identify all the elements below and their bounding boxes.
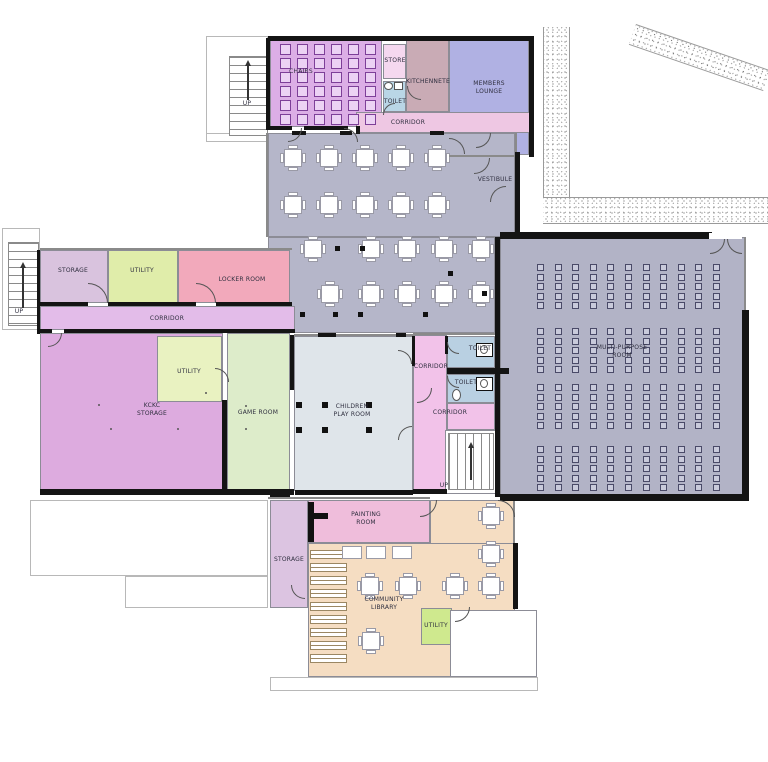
seat (607, 328, 614, 335)
table-top (356, 196, 374, 214)
sink-icon (394, 82, 403, 90)
chair (302, 200, 306, 210)
seat (625, 446, 632, 453)
seat (660, 264, 667, 271)
seat (555, 465, 562, 472)
seat (590, 446, 597, 453)
chair (366, 650, 376, 654)
wall-thin (513, 500, 515, 543)
seat (590, 475, 597, 482)
seat (537, 384, 544, 391)
chair (280, 44, 291, 55)
chair (331, 44, 342, 55)
seat (695, 394, 702, 401)
seat (643, 264, 650, 271)
seat (555, 422, 562, 429)
chair (365, 86, 376, 97)
seat (695, 484, 702, 491)
seat (555, 293, 562, 300)
seat (713, 394, 720, 401)
label-painting-room: PAINTING ROOM (351, 511, 381, 527)
seat (678, 394, 685, 401)
label-up-top: UP (243, 100, 251, 108)
seat (607, 465, 614, 472)
seat (713, 384, 720, 391)
column (322, 427, 328, 433)
chair (348, 72, 359, 83)
table (478, 541, 504, 567)
chair (374, 153, 378, 163)
up-arrow-icon (245, 60, 251, 66)
bookshelf (310, 589, 347, 598)
wall-segment (266, 38, 270, 130)
table-top (356, 149, 374, 167)
wall-segment (268, 36, 532, 41)
seat (643, 413, 650, 420)
seat (555, 394, 562, 401)
label-storage-bottom: STORAGE (274, 556, 304, 564)
table-top (362, 632, 380, 650)
seat (590, 293, 597, 300)
seat (660, 384, 667, 391)
seat (695, 293, 702, 300)
table-top (428, 149, 446, 167)
seat (537, 302, 544, 309)
seat (607, 403, 614, 410)
chair (365, 114, 376, 125)
seat (695, 422, 702, 429)
table (358, 628, 384, 654)
chair (314, 114, 325, 125)
chair (322, 244, 326, 254)
chair (464, 581, 468, 591)
wall-thin (268, 497, 430, 499)
table-top (398, 240, 416, 258)
seat (572, 465, 579, 472)
up-arrow-icon (247, 65, 249, 100)
seat (572, 293, 579, 300)
bookshelf (310, 576, 347, 585)
wall-thin (413, 333, 495, 335)
marker-dot (245, 428, 247, 430)
label-chairs-room: CHAIRS (289, 68, 313, 76)
seat (555, 264, 562, 271)
seat (713, 338, 720, 345)
chair (402, 258, 412, 262)
table (395, 573, 421, 599)
label-locker-room: LOCKER ROOM (219, 276, 266, 284)
chair (432, 214, 442, 218)
bookshelf (310, 654, 347, 663)
seat (625, 413, 632, 420)
wall-segment (222, 400, 227, 495)
seat (660, 475, 667, 482)
seat (678, 422, 685, 429)
seat (643, 328, 650, 335)
label-corridor-top: CORRIDOR (391, 119, 425, 127)
seat (713, 328, 720, 335)
stipple-area (543, 197, 768, 224)
seat (660, 293, 667, 300)
label-utility-mid: UTILITY (130, 267, 154, 275)
seat (695, 338, 702, 345)
seat (625, 403, 632, 410)
up-arrow-icon (20, 262, 26, 268)
seat (537, 394, 544, 401)
table (316, 145, 342, 171)
seat (572, 302, 579, 309)
chair (325, 303, 335, 307)
seat (555, 357, 562, 364)
chair (331, 114, 342, 125)
wall-segment (430, 131, 444, 135)
table-top (482, 545, 500, 563)
chair (348, 86, 359, 97)
chair (280, 100, 291, 111)
column (335, 246, 340, 251)
table (478, 573, 504, 599)
label-community-library: COMMUNITY LIBRARY (364, 596, 403, 612)
seat (537, 293, 544, 300)
seat (695, 465, 702, 472)
chair (486, 525, 496, 529)
seat (660, 413, 667, 420)
table-top (472, 285, 490, 303)
seat (713, 274, 720, 281)
chair (338, 153, 342, 163)
seat (643, 274, 650, 281)
seat (643, 302, 650, 309)
seat (643, 394, 650, 401)
table (316, 192, 342, 218)
seat (590, 413, 597, 420)
seat (643, 403, 650, 410)
chair (365, 44, 376, 55)
easel-icon (308, 513, 328, 519)
seat (678, 366, 685, 373)
seat (607, 475, 614, 482)
table-top (472, 240, 490, 258)
wall-segment (40, 489, 294, 495)
wall-thin (744, 237, 746, 313)
wall-segment (318, 333, 336, 337)
seat (678, 475, 685, 482)
chair (348, 114, 359, 125)
table (424, 145, 450, 171)
marker-dot (205, 392, 207, 394)
chair (403, 595, 413, 599)
seat (625, 264, 632, 271)
bookshelf (310, 615, 347, 624)
table (342, 546, 362, 559)
seat (660, 283, 667, 290)
seat (660, 366, 667, 373)
wall-thin (449, 155, 517, 157)
seat (555, 384, 562, 391)
seat (660, 484, 667, 491)
table-top (435, 285, 453, 303)
seat (678, 456, 685, 463)
room-utility-mid (108, 250, 178, 303)
label-up-bottom: UP (440, 482, 448, 490)
seat (555, 302, 562, 309)
wall-segment (500, 494, 749, 501)
seat (590, 384, 597, 391)
seat (625, 484, 632, 491)
seat (625, 394, 632, 401)
chair (410, 200, 414, 210)
column (360, 246, 365, 251)
chair (476, 258, 486, 262)
chair (339, 289, 343, 299)
wall-segment (270, 492, 290, 497)
column (482, 291, 487, 296)
table (300, 236, 326, 262)
easel-icon (308, 502, 314, 542)
seat (537, 328, 544, 335)
seat (537, 347, 544, 354)
wall-segment (304, 126, 348, 130)
seat (713, 422, 720, 429)
seat (572, 456, 579, 463)
chair (331, 86, 342, 97)
sink-icon (384, 82, 393, 90)
seat (555, 283, 562, 290)
chair (348, 44, 359, 55)
seat (660, 274, 667, 281)
chair (396, 167, 406, 171)
marker-dot (98, 404, 100, 406)
chair (453, 289, 457, 299)
seat (713, 366, 720, 373)
chair (439, 303, 449, 307)
seat (590, 302, 597, 309)
seat (678, 293, 685, 300)
table (388, 145, 414, 171)
seat (713, 264, 720, 271)
chair (297, 114, 308, 125)
seat (643, 293, 650, 300)
seat (695, 446, 702, 453)
seat (695, 274, 702, 281)
seat (555, 403, 562, 410)
seat (555, 347, 562, 354)
table-top (362, 285, 380, 303)
seat (572, 357, 579, 364)
stipple-area (629, 24, 768, 91)
seat (695, 456, 702, 463)
seat (695, 283, 702, 290)
label-corridor-mid: CORRIDOR (150, 315, 184, 323)
toilet-bowl-icon (480, 379, 488, 388)
chair (314, 44, 325, 55)
seat (537, 446, 544, 453)
marker-dot (110, 428, 112, 430)
seat (660, 357, 667, 364)
seat (590, 347, 597, 354)
seat (625, 384, 632, 391)
seat (537, 264, 544, 271)
column (366, 427, 372, 433)
seat (713, 403, 720, 410)
seat (678, 347, 685, 354)
deck-area (30, 500, 268, 576)
seat (537, 403, 544, 410)
seat (713, 413, 720, 420)
seat (555, 366, 562, 373)
seat (607, 394, 614, 401)
wall-segment (290, 335, 294, 390)
seat (555, 446, 562, 453)
wall-segment (500, 232, 712, 239)
seat (572, 338, 579, 345)
seat (572, 484, 579, 491)
seat (643, 422, 650, 429)
chair (416, 289, 420, 299)
seat (660, 338, 667, 345)
wall-thin (40, 248, 292, 250)
seat (643, 283, 650, 290)
chair (365, 100, 376, 111)
bookshelf (310, 641, 347, 650)
deck-area (125, 576, 268, 608)
seat (695, 384, 702, 391)
seat (537, 413, 544, 420)
chair (314, 100, 325, 111)
label-vestibule: VESTIBULE (478, 176, 513, 184)
table (317, 281, 343, 307)
seat (643, 446, 650, 453)
chair (365, 58, 376, 69)
label-corridor-vertical: CORRIDOR (414, 363, 448, 371)
seat (590, 338, 597, 345)
seat (678, 283, 685, 290)
chair (314, 58, 325, 69)
seat (643, 366, 650, 373)
seat (607, 484, 614, 491)
seat (713, 347, 720, 354)
seat (607, 293, 614, 300)
chair (360, 214, 370, 218)
label-toilet-upper: TOILET (469, 345, 491, 353)
seat (678, 465, 685, 472)
wall-segment (356, 126, 360, 134)
seat (695, 264, 702, 271)
seat (607, 366, 614, 373)
chair (366, 303, 376, 307)
chair (360, 167, 370, 171)
chair (453, 244, 457, 254)
label-multi-purpose-room: MULTI-PURPOSE ROOM (597, 344, 647, 360)
seat (537, 465, 544, 472)
label-toilet-top: TOILET (384, 98, 406, 106)
table (468, 281, 494, 307)
seat (678, 484, 685, 491)
room-white-room (450, 610, 537, 677)
seat (572, 274, 579, 281)
seat (607, 283, 614, 290)
table-top (320, 149, 338, 167)
table-top (392, 196, 410, 214)
wall-segment (295, 490, 413, 495)
seat (695, 413, 702, 420)
seat (572, 283, 579, 290)
seat (590, 394, 597, 401)
seat (537, 338, 544, 345)
bookshelf (310, 602, 347, 611)
floor-plan: CHAIRSSTORETOILETKITCHENNETEMEMBERS LOUN… (0, 0, 768, 762)
table (280, 145, 306, 171)
wall-segment (40, 302, 88, 306)
wall-thin (266, 133, 268, 237)
seat (537, 422, 544, 429)
wall-segment (396, 333, 406, 337)
chair (288, 214, 298, 218)
wall-segment (108, 302, 196, 306)
chair (432, 167, 442, 171)
chair (380, 289, 384, 299)
table (357, 573, 383, 599)
seat (555, 484, 562, 491)
seat (625, 422, 632, 429)
table (394, 281, 420, 307)
chair (416, 244, 420, 254)
up-arrow-icon (22, 267, 24, 308)
seat (678, 338, 685, 345)
label-storage-mid: STORAGE (58, 267, 88, 275)
seat (678, 446, 685, 453)
chair (396, 214, 406, 218)
seat (537, 475, 544, 482)
seat (660, 328, 667, 335)
table (431, 281, 457, 307)
toilet-icon (452, 389, 461, 401)
label-toilet-lower: TOILET (455, 379, 477, 387)
seat (695, 475, 702, 482)
chair (450, 595, 460, 599)
table-top (435, 240, 453, 258)
seat (607, 413, 614, 420)
wall-segment (37, 250, 40, 334)
column (296, 427, 302, 433)
chair (314, 72, 325, 83)
seat (695, 302, 702, 309)
table (280, 192, 306, 218)
seat (695, 347, 702, 354)
bookshelf (310, 628, 347, 637)
wall-segment (515, 152, 520, 237)
seat (625, 475, 632, 482)
seat (555, 413, 562, 420)
seat (678, 357, 685, 364)
chair (348, 100, 359, 111)
table-top (361, 577, 379, 595)
seat (590, 422, 597, 429)
seat (625, 456, 632, 463)
chair (297, 44, 308, 55)
seat (678, 264, 685, 271)
seat (555, 274, 562, 281)
seat (660, 302, 667, 309)
table-top (392, 149, 410, 167)
seat (643, 465, 650, 472)
seat (713, 293, 720, 300)
chair (338, 200, 342, 210)
table (358, 281, 384, 307)
room-corridor-top (356, 112, 530, 133)
label-kitchenette: KITCHENNETE (406, 78, 450, 86)
seat (625, 465, 632, 472)
